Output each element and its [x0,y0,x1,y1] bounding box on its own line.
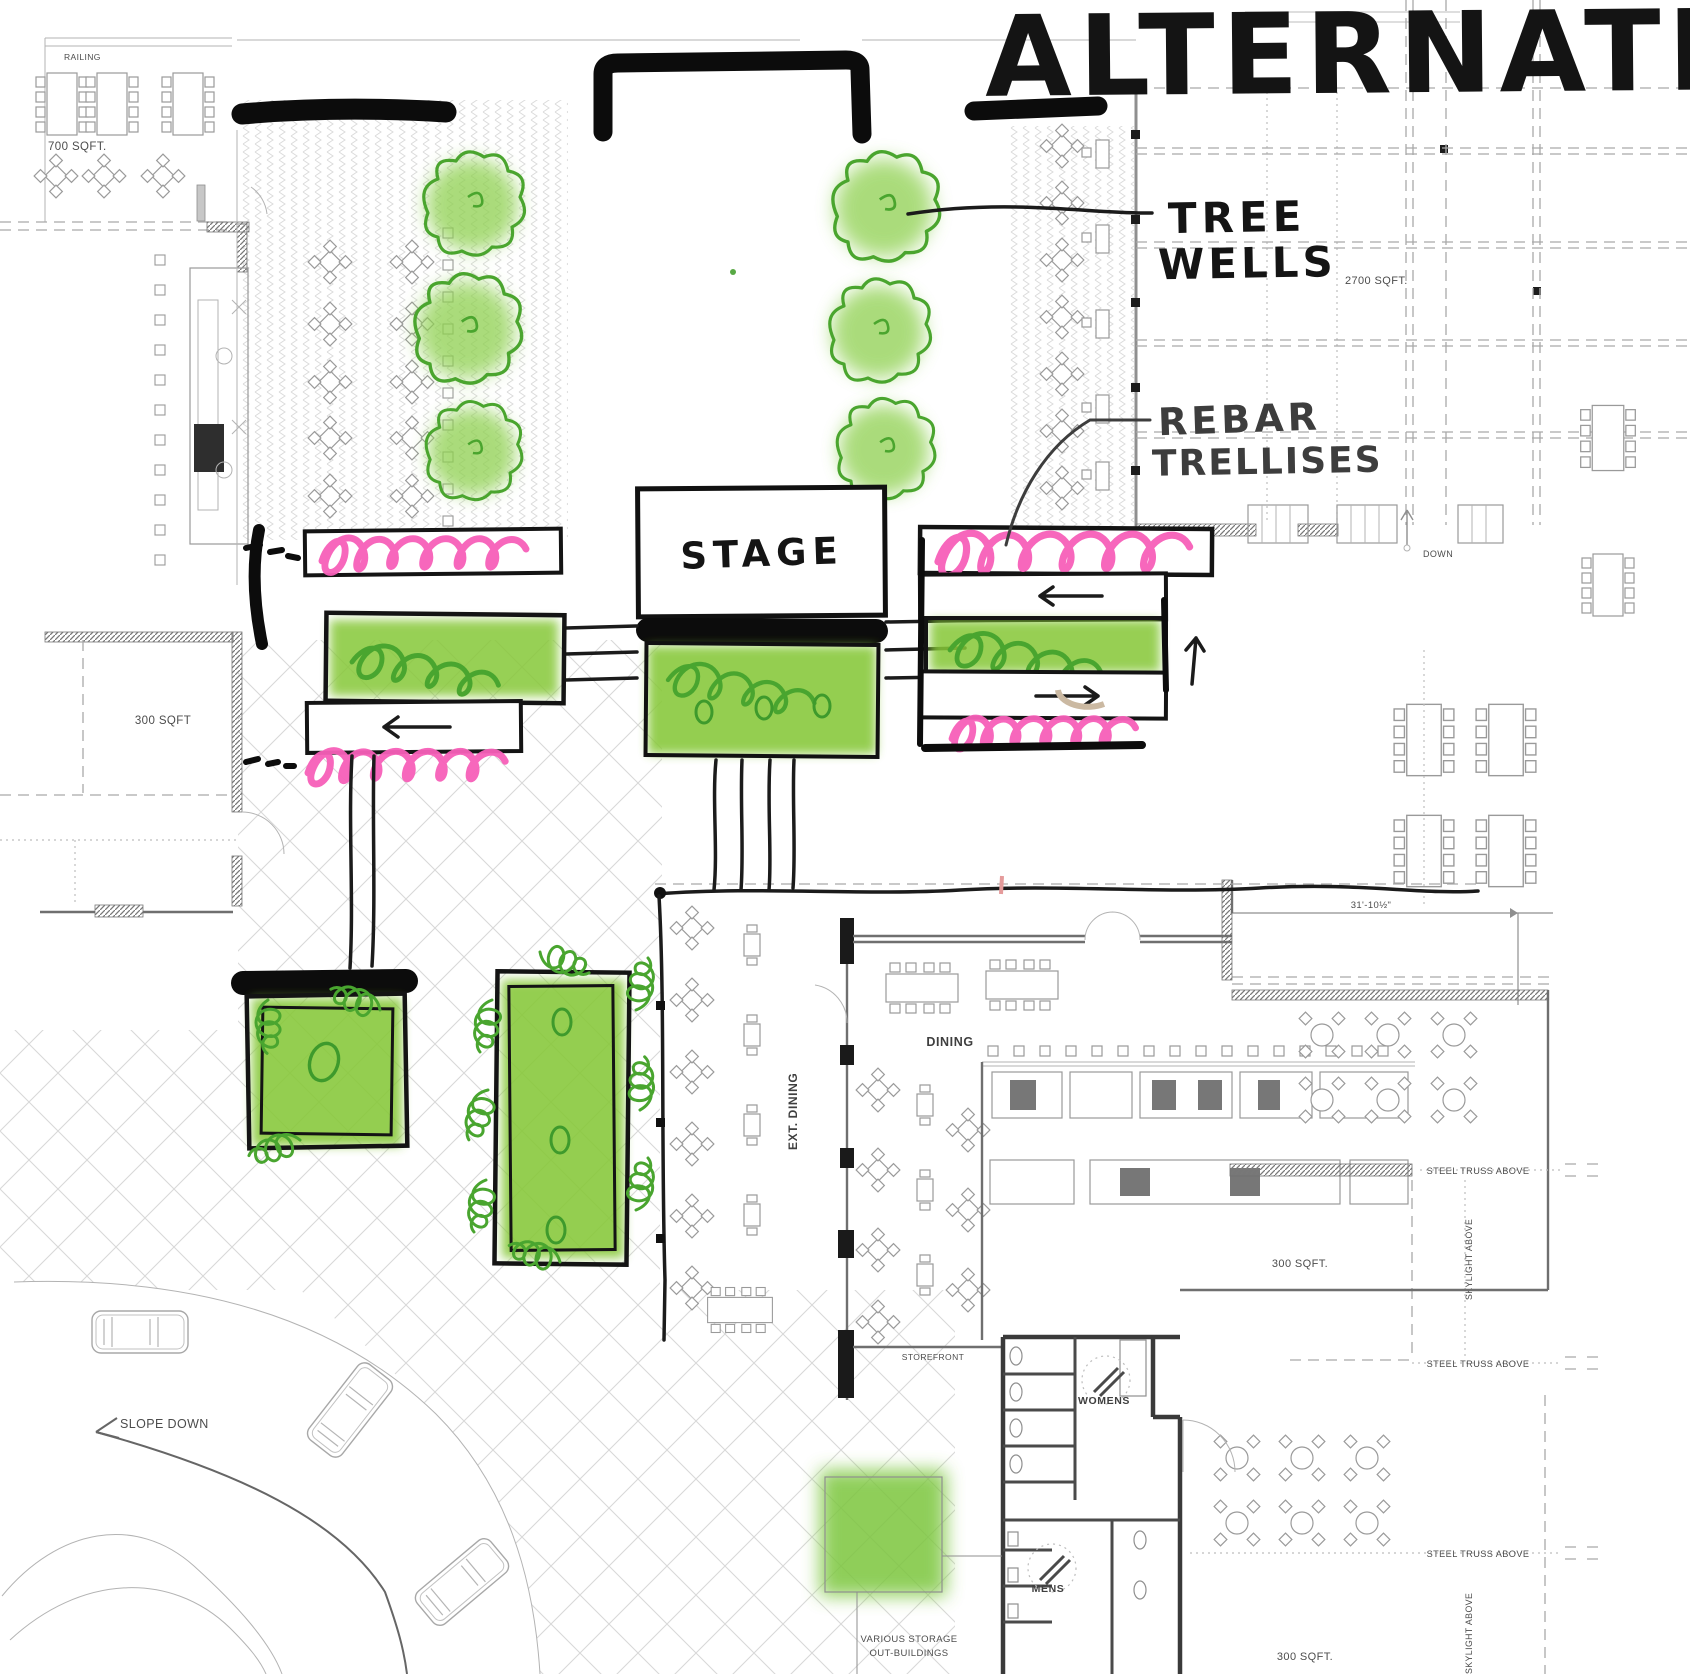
planter-square [243,981,407,1173]
stage-posts [714,760,794,890]
sqft-2700-label: 2700 SQFT. [1345,275,1408,287]
table [34,154,78,198]
stray-green-dot [730,269,736,275]
sqft-700-label: 700 SQFT. [48,141,107,153]
plan-canvas: SLOPE DOWN RAILING 700 SQFT. 300 SQFT [0,0,1690,1674]
dim-31-label: 31'-10½" [1351,900,1392,911]
skylight-label-2: SKYLIGHT ABOVE [1464,1593,1474,1674]
tree-icon [833,152,940,262]
sqft-300-bottom-label: 300 SQFT. [1277,1651,1333,1663]
mens-label: MENS [1032,1583,1065,1595]
sqft-300-mid-label: 300 SQFT. [1272,1258,1328,1270]
ext-dining-tables [670,906,772,1332]
marker-bar-topleft [242,109,446,114]
planter-marker-bar [243,981,406,983]
dimension-31: 31'-10½" [1222,880,1553,1005]
north-boundary-sketch [657,886,1478,894]
herringbone-patio-right [1008,126,1134,542]
banquet-table [36,73,88,135]
steel-truss-label-3: STEEL TRUSS ABOVE [1427,1549,1530,1559]
red-tick [1001,876,1002,894]
storefront-label: STOREFRONT [902,1352,964,1362]
tree-wells-label-1: TREE [1168,192,1307,243]
arrow-up [1186,638,1204,684]
storage-green-highlight [820,1470,946,1596]
hall-2700: 2700 SQFT. DOWN 31'-10½" [1131,0,1690,1005]
rebar-label-1: REBAR [1157,395,1321,445]
room-300-left: 300 SQFT [0,632,284,917]
tree-wells-trees [415,152,940,500]
table [141,154,185,198]
down-label: DOWN [1423,549,1453,559]
car-icon [92,1311,188,1353]
womens-label: WOMENS [1078,1395,1130,1407]
tree-icon [837,398,935,498]
rebar-label-2: TRELLISES [1152,440,1383,485]
steel-truss-label-2: STEEL TRUSS ABOVE [1427,1359,1530,1369]
alternate-label: ALTERNATE [984,0,1690,123]
kitchen [982,1046,1415,1340]
slope-down-label: SLOPE DOWN [120,1417,209,1431]
trellis-right [920,527,1212,749]
steel-truss-label-1: STEEL TRUSS ABOVE [1427,1166,1530,1176]
east-rooms: 300 SQFT. STEEL TRUSS ABOVE SKYLIGHT ABO… [1180,990,1601,1674]
stage-label: STAGE [680,529,845,578]
table [82,154,126,198]
stage-marker-bar [648,630,876,631]
bar-equipment [194,424,224,472]
site-plan-sketch: SLOPE DOWN RAILING 700 SQFT. 300 SQFT [0,0,1690,1674]
marker-gate [603,60,862,134]
banquet-table [86,73,138,135]
ext-dining-label: EXT. DINING [786,1073,800,1150]
railing-label: RAILING [64,52,101,62]
tree-wells-label-2: WELLS [1158,237,1338,289]
storage-label-1: VARIOUS STORAGE [861,1634,958,1645]
tree-icon [830,279,931,382]
stage-planter-green [648,646,876,754]
dining-label: DINING [926,1035,973,1049]
sqft-300-left-label: 300 SQFT [135,715,191,727]
banquet-table [162,73,214,135]
restrooms: WOMENS MENS [1003,1337,1180,1674]
storage-label-2: OUT-BUILDINGS [869,1648,948,1659]
